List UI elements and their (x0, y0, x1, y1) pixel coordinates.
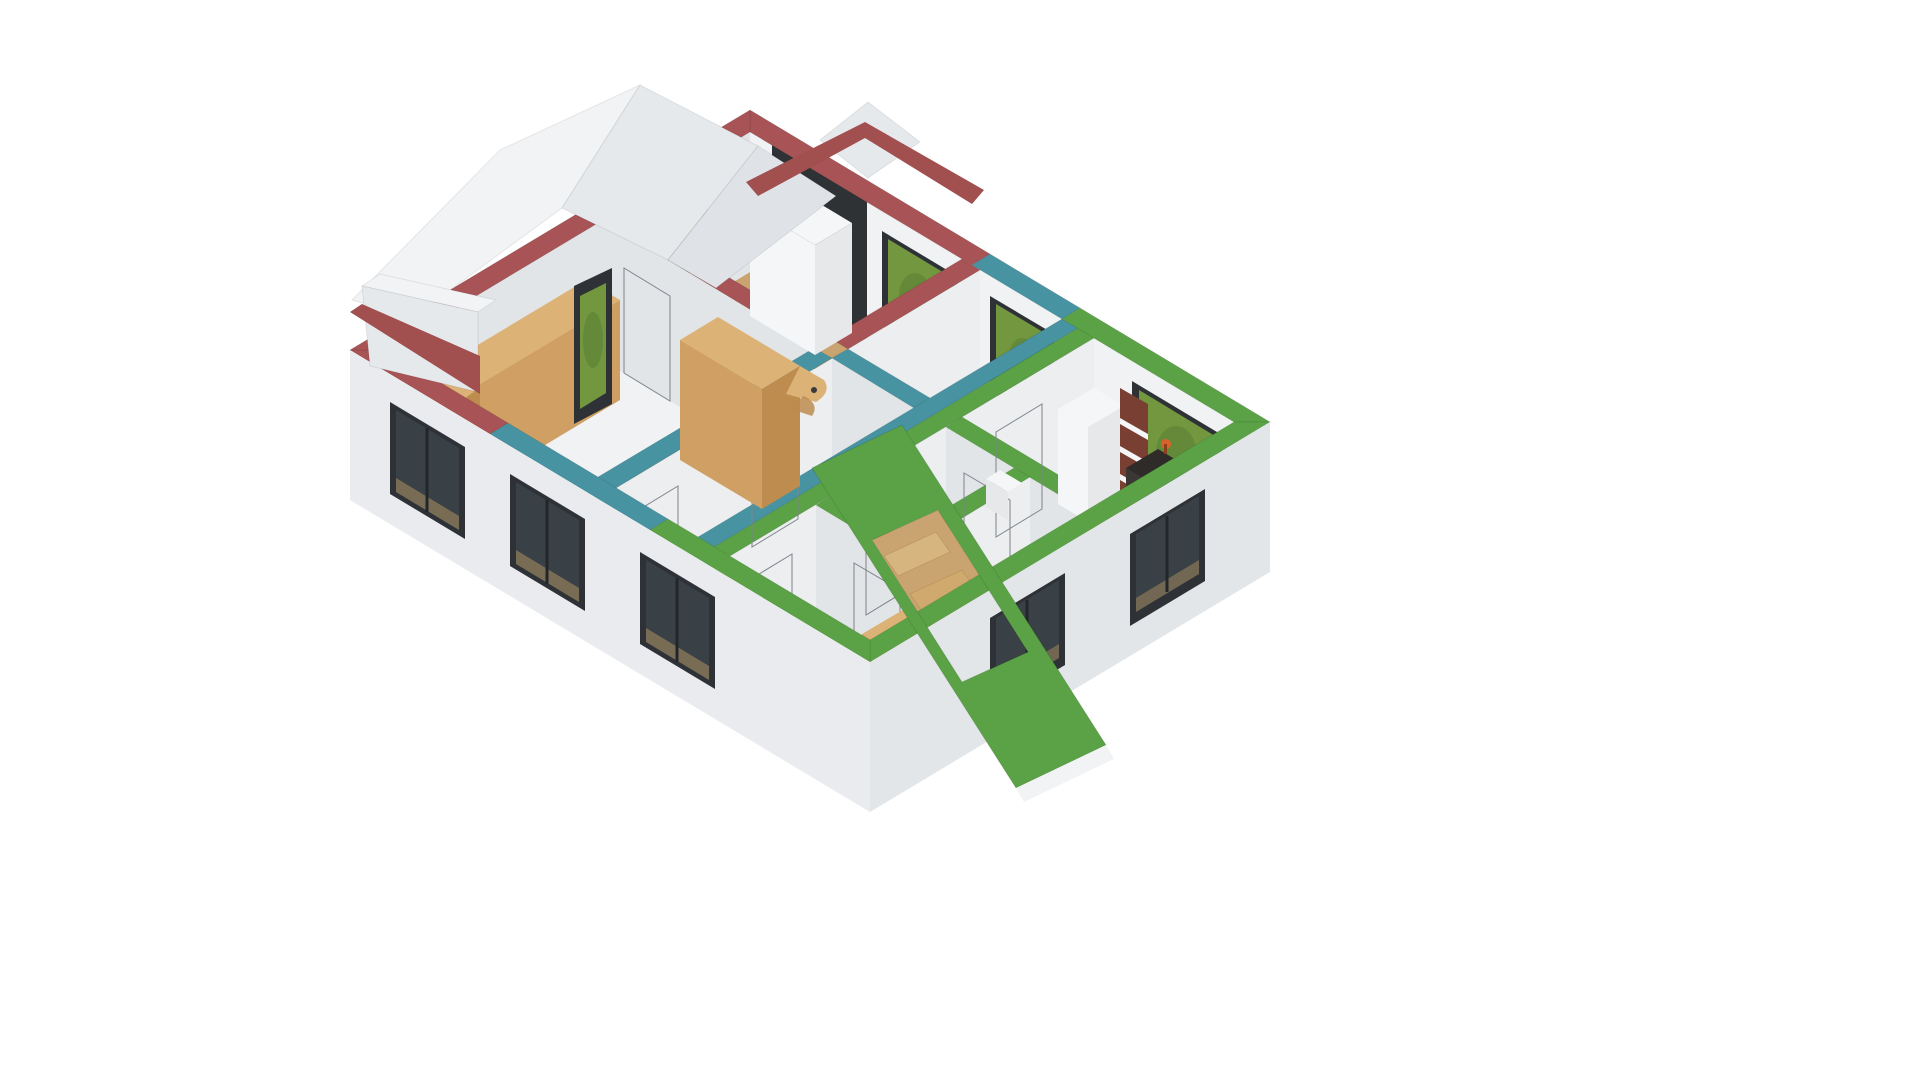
gable-tall-window (574, 268, 612, 424)
page: { "scene": { "kind": "3d-house-floor-pla… (0, 0, 1920, 1080)
floor-plan-viewport[interactable] (0, 0, 1920, 1080)
house-render (0, 0, 1920, 1080)
